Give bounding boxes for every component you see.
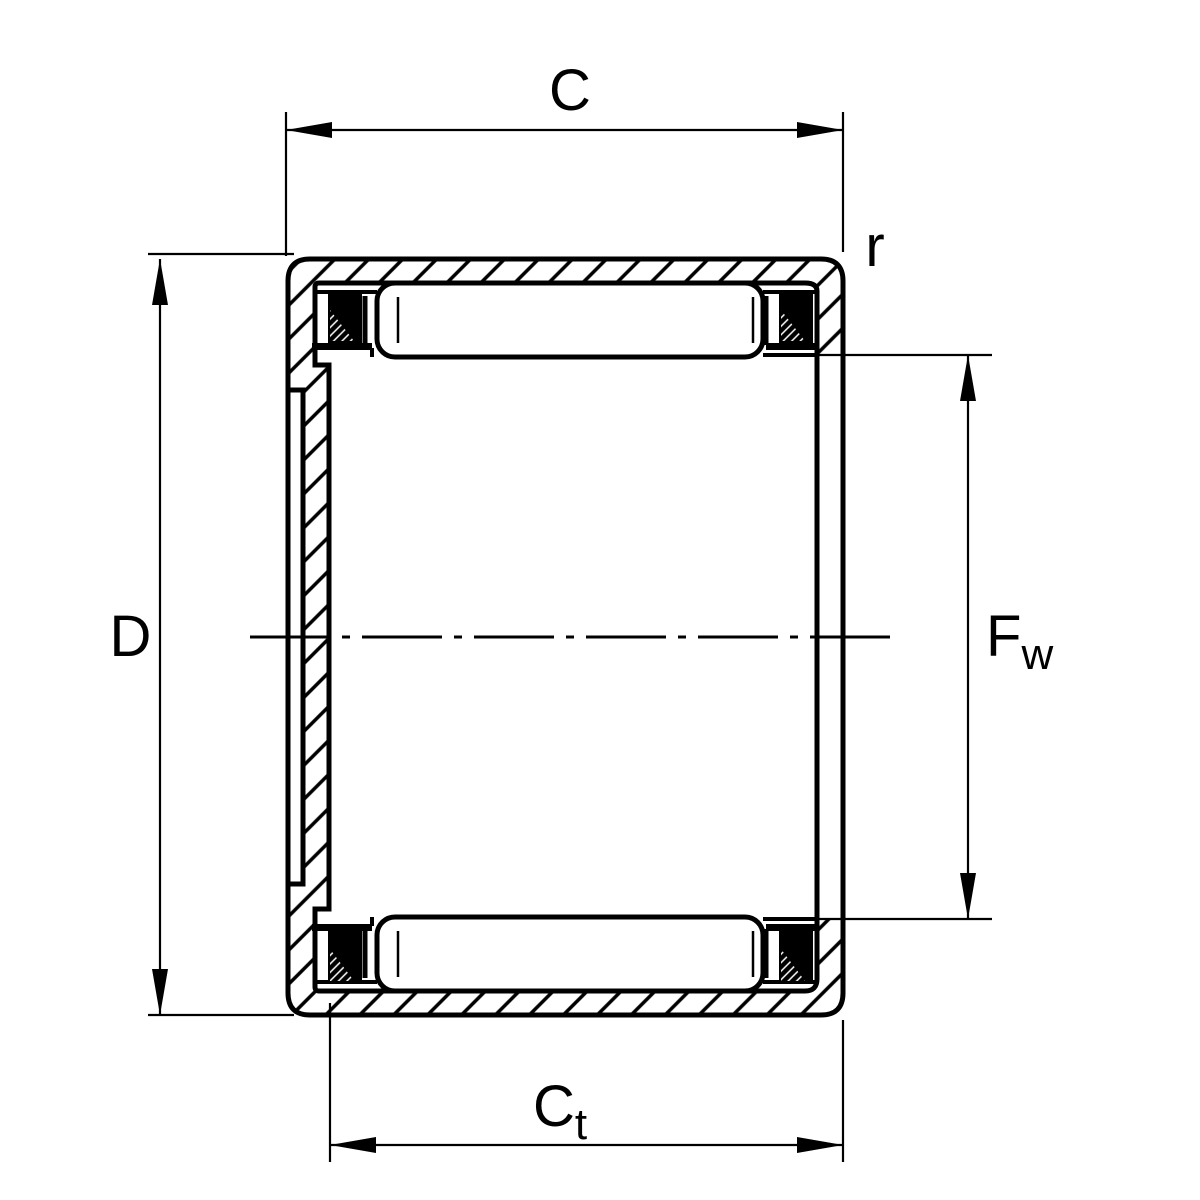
- needle-roller-bottom: [377, 917, 763, 991]
- label-outer-diameter-d: D: [88, 608, 173, 666]
- bearing-cross-section-drawing: C D Fw Ct r: [0, 0, 1200, 1200]
- label-fw-subscript: w: [1021, 633, 1053, 677]
- arrow-d-bottom: [152, 969, 168, 1015]
- label-ct-subscript: t: [575, 1103, 587, 1147]
- drawing-canvas: [0, 0, 1200, 1200]
- arrow-c-right: [797, 122, 843, 138]
- arrow-ct-left: [330, 1137, 376, 1153]
- arrow-ct-right: [797, 1137, 843, 1153]
- label-total-width-ct: Ct: [490, 1078, 630, 1136]
- label-ct-base: C: [533, 1074, 575, 1139]
- label-bore-diameter-fw: Fw: [986, 608, 1053, 666]
- label-fw-base: F: [986, 604, 1021, 669]
- arrow-fw-top: [960, 355, 976, 401]
- arrow-c-left: [286, 122, 332, 138]
- arrow-fw-bottom: [960, 873, 976, 919]
- arrow-d-top: [152, 259, 168, 305]
- needle-roller-top: [377, 283, 763, 357]
- label-outer-width-c: C: [510, 62, 630, 120]
- label-corner-radius-r: r: [845, 218, 905, 276]
- lip-top-right: [766, 343, 818, 350]
- lip-bottom-right: [766, 924, 818, 931]
